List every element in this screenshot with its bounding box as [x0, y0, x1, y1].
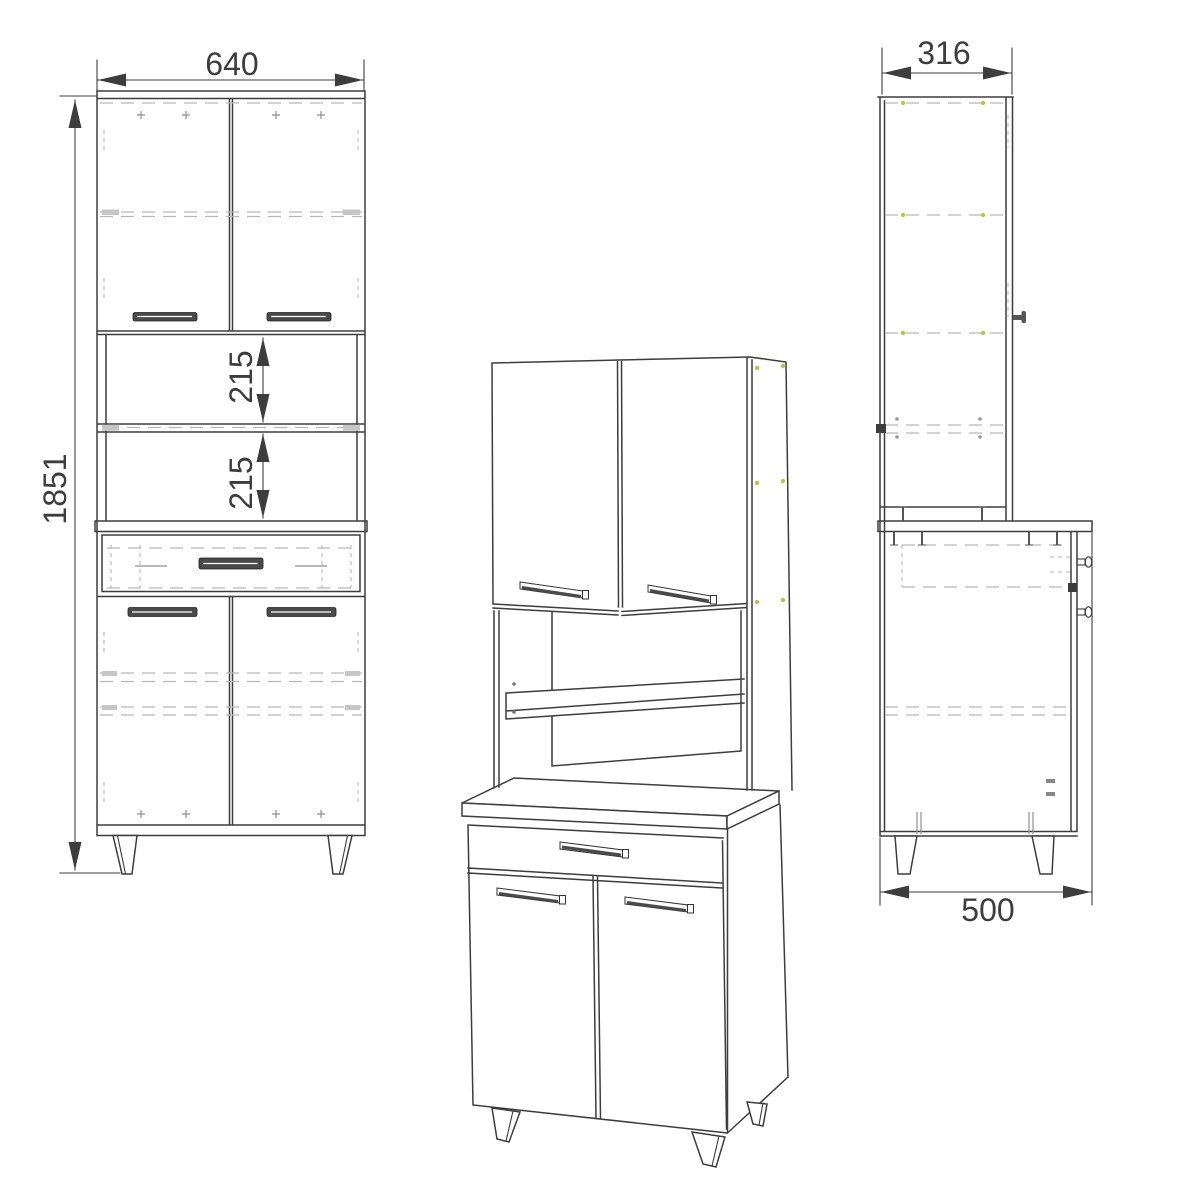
- perspective-front-left-leg: [492, 1108, 520, 1142]
- perspective-front-right-leg: [692, 1132, 725, 1167]
- upper-opening-label: 215: [223, 350, 259, 403]
- side-dimension-lines: [880, 48, 1092, 905]
- side-dimension-arrows: [881, 67, 1091, 899]
- front-hidden-lines: [100, 103, 362, 803]
- side-hidden-lines: [885, 103, 1073, 715]
- dowel-pins: [894, 507, 1057, 545]
- side-hidden-rows: [885, 103, 1068, 715]
- cabinet-technical-drawing: 640 1851 215 215: [0, 0, 1200, 1200]
- side-right-leg: [1032, 836, 1054, 874]
- front-leg-inner-edges: [118, 836, 348, 875]
- side-fitting-dots: [901, 101, 985, 335]
- perspective-handles: [497, 582, 717, 913]
- front-dimension-arrows: [69, 74, 364, 871]
- drawing-canvas: 640 1851 215 215: [0, 0, 1200, 1200]
- door-handle-side-profile: [1013, 315, 1022, 320]
- lower-opening-label: 215: [223, 456, 259, 509]
- shelf-support-mark: [876, 424, 886, 433]
- leg-screw-marks: [917, 812, 1033, 834]
- front-view-drawing: 640 1851 215 215: [37, 46, 367, 874]
- perspective-cabinet-outline: [468, 357, 792, 1133]
- side-base-depth-label: 500: [961, 892, 1014, 928]
- perspective-lines: [462, 357, 792, 1167]
- cam-lock-mark: [1068, 583, 1077, 592]
- side-dimensions: 316 500: [880, 35, 1092, 928]
- front-right-leg: [328, 836, 352, 875]
- front-dimensions: 640 1851 215 215: [37, 46, 364, 873]
- front-width-label: 640: [205, 46, 258, 82]
- side-view-drawing: 316 500: [876, 35, 1092, 928]
- front-hidden-rows: [100, 103, 362, 715]
- side-carcass-outline: [878, 97, 1092, 836]
- perspective-handle-shading: [499, 588, 709, 911]
- dowel-pin-caps: [890, 507, 1061, 545]
- perspective-shelf-pins: [512, 682, 516, 714]
- perspective-view-drawing: [462, 357, 792, 1167]
- side-carcass-lines: [878, 97, 1092, 874]
- perspective-fitting-dots: [755, 364, 785, 604]
- side-left-leg: [895, 836, 917, 874]
- back-panel-screws: [1077, 557, 1092, 617]
- side-top-depth-label: 316: [917, 35, 970, 71]
- side-hinge-and-slide-marks: [902, 115, 1073, 587]
- front-left-leg: [113, 836, 137, 875]
- front-height-label: 1851: [37, 453, 73, 524]
- perspective-back-right-leg: [747, 1102, 767, 1126]
